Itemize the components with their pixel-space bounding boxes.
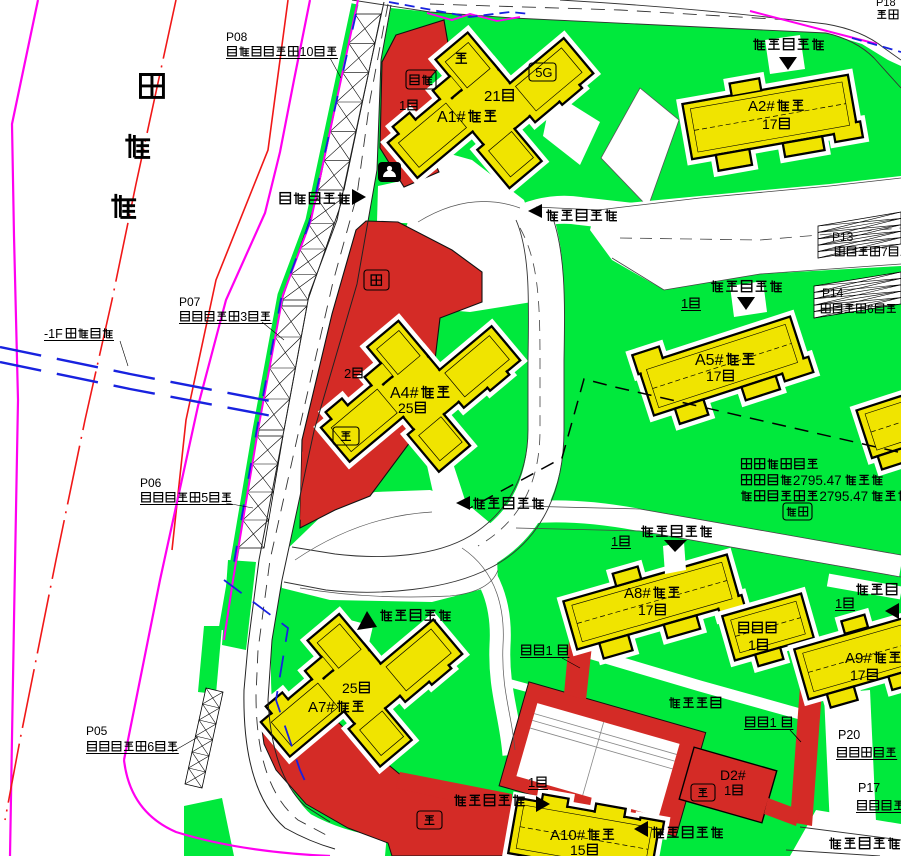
svg-text:1: 1 <box>681 296 688 311</box>
svg-text:P07: P07 <box>179 295 201 309</box>
svg-text:D2#: D2# <box>720 767 746 783</box>
svg-text:3: 3 <box>240 310 247 324</box>
svg-text:2: 2 <box>344 366 351 381</box>
svg-text:5: 5 <box>201 491 208 505</box>
svg-text:P20: P20 <box>838 728 860 742</box>
svg-text:P18: P18 <box>876 0 896 9</box>
svg-text:1: 1 <box>835 596 842 611</box>
svg-text:P17: P17 <box>858 781 880 795</box>
svg-text:A9#: A9# <box>845 650 872 667</box>
svg-text:1: 1 <box>399 98 406 113</box>
svg-text:-1F: -1F <box>44 327 63 341</box>
svg-text:2795.47: 2795.47 <box>819 489 868 504</box>
svg-text:10: 10 <box>300 45 314 59</box>
svg-text:25: 25 <box>398 400 414 416</box>
svg-text:1: 1 <box>546 643 553 658</box>
svg-text:P13: P13 <box>832 230 854 244</box>
svg-text:1: 1 <box>770 715 777 730</box>
svg-text:6: 6 <box>147 740 154 754</box>
svg-text:17: 17 <box>762 116 778 132</box>
svg-text:1: 1 <box>748 637 756 653</box>
svg-text:6: 6 <box>867 302 874 316</box>
svg-text:2795.47: 2795.47 <box>793 473 842 488</box>
svg-text:A2#: A2# <box>748 98 775 115</box>
svg-text:25: 25 <box>342 680 358 696</box>
svg-text:P08: P08 <box>226 30 248 44</box>
svg-text:17: 17 <box>706 368 722 384</box>
svg-text:5G: 5G <box>535 65 552 80</box>
svg-text:15: 15 <box>570 842 586 856</box>
svg-text:A1#: A1# <box>437 109 466 126</box>
svg-text:17: 17 <box>850 667 866 683</box>
svg-text:21: 21 <box>484 88 501 105</box>
svg-text:17: 17 <box>638 602 654 618</box>
svg-text:A8#: A8# <box>624 585 651 602</box>
svg-text:7: 7 <box>881 245 888 259</box>
svg-text:1: 1 <box>611 534 618 549</box>
svg-text:P14: P14 <box>822 286 844 300</box>
svg-text:1: 1 <box>528 775 535 790</box>
svg-text:P05: P05 <box>86 724 108 738</box>
svg-text:P06: P06 <box>140 476 162 490</box>
svg-text:1: 1 <box>724 783 731 798</box>
svg-text:A5#: A5# <box>695 352 724 369</box>
svg-text:A7#: A7# <box>308 699 335 716</box>
